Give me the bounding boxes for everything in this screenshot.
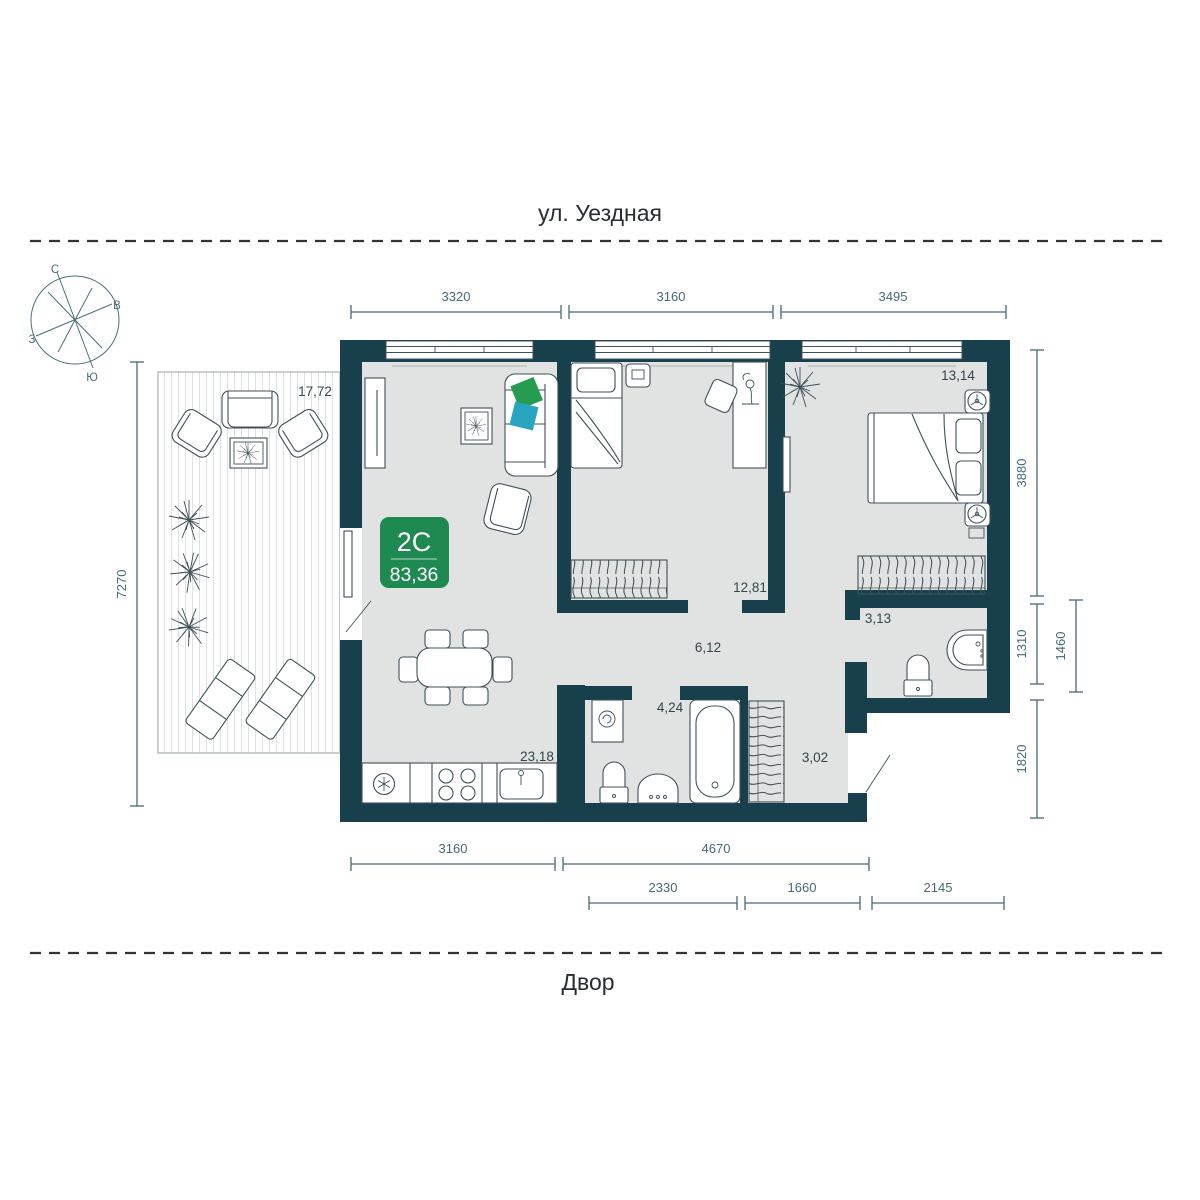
dim-label: 3495: [879, 289, 908, 304]
wall-segment: [845, 698, 1010, 713]
wall-segment: [740, 700, 748, 803]
dim-label: 3160: [439, 841, 468, 856]
floor-plan-canvas: ул. Уездная Двор С В З Ю: [0, 0, 1200, 1200]
dim-segment: 3880: [1014, 350, 1044, 596]
dim-segment: 3160: [351, 841, 555, 871]
compass-west-label: З: [29, 334, 36, 346]
dim-label: 4670: [702, 841, 731, 856]
wall-segment: [845, 608, 860, 620]
dim-label: 1660: [788, 880, 817, 895]
wall-segment: [680, 686, 748, 700]
dim-label: 2145: [924, 880, 953, 895]
terrace-sofa: [222, 391, 278, 428]
terrace-coffee-table: [230, 438, 267, 468]
nightstand: [626, 364, 650, 387]
room-area-label-bedroom-2: 13,14: [941, 368, 975, 383]
tv-stand: [365, 378, 385, 468]
bed-pillow: [956, 461, 981, 495]
entrance-door: [848, 733, 890, 793]
dimensions-top: 3320 3160 3495: [351, 289, 1006, 319]
dim-segment: 1310: [1014, 604, 1044, 684]
street-bottom-label: Двор: [561, 969, 614, 995]
wall-segment: [742, 600, 768, 613]
dining-chair: [463, 687, 488, 705]
street-bottom: Двор: [30, 953, 1170, 995]
bathroom-sink-icon: [638, 774, 678, 803]
wall-segment: [340, 803, 867, 822]
dim-label: 1460: [1053, 632, 1068, 661]
washing-machine-icon: [592, 700, 623, 742]
kitchen-sink-icon: [500, 769, 543, 799]
dim-segment: 2145: [872, 880, 1004, 910]
street-top: ул. Уездная: [30, 200, 1170, 241]
dimensions-right: 3880 1310 1460 1820: [1014, 350, 1083, 818]
unit-badge: 2С 83,36: [380, 517, 449, 588]
dim-label: 1820: [1014, 745, 1029, 774]
floor-plan-page: ул. Уездная Двор С В З Ю: [0, 0, 1200, 1200]
wall-segment: [340, 340, 362, 528]
sofa: [505, 374, 558, 476]
dim-label: 3320: [442, 289, 471, 304]
room-area-label-bathroom: 4,24: [657, 700, 684, 715]
single-bed: [571, 363, 622, 468]
mirror: [783, 437, 790, 492]
street-top-label: ул. Уездная: [538, 200, 662, 226]
picture-frame: [461, 408, 492, 444]
dim-label: 3880: [1014, 459, 1029, 488]
bed-pillow: [956, 419, 981, 453]
dim-label: 7270: [114, 570, 129, 599]
dim-segment: 1660: [745, 880, 860, 910]
toilet-icon: [600, 762, 628, 803]
room-area-label-hall: 6,12: [695, 640, 721, 655]
dining-chair: [425, 630, 450, 648]
room-area-label-wc: 3,13: [865, 611, 891, 626]
nightstand-lamp: [965, 390, 990, 413]
unit-area-label: 83,36: [390, 564, 439, 586]
bathtub: [690, 700, 740, 803]
unit-type-label: 2С: [397, 527, 432, 557]
wall-segment: [557, 362, 571, 613]
dim-segment: 3495: [781, 289, 1006, 319]
dim-segment: 4670: [563, 841, 869, 871]
double-bed: [868, 413, 983, 503]
dining-chair: [493, 657, 512, 682]
dim-segment: 7270: [114, 362, 144, 806]
dim-label: 1310: [1014, 630, 1029, 659]
kitchen-counter: [362, 763, 557, 803]
room-area-label-entry-hall: 3,02: [802, 750, 828, 765]
dim-label: 3160: [657, 289, 686, 304]
compass-south-label: Ю: [86, 372, 98, 384]
wall-segment: [557, 685, 585, 803]
closet-hangers: [749, 701, 784, 802]
dim-segment: 3160: [569, 289, 773, 319]
wall-segment: [585, 686, 632, 700]
dim-segment: 3320: [351, 289, 561, 319]
dining-chair: [399, 657, 418, 682]
wardrobe-hangers: [571, 560, 667, 598]
wall-segment: [557, 600, 688, 613]
dim-label: 2330: [649, 880, 678, 895]
dimensions-bottom-inner: 2330 1660 2145: [589, 880, 1004, 910]
wall-segment: [340, 640, 362, 822]
compass-north-label: С: [51, 264, 59, 276]
wc-sink-icon: [947, 630, 987, 670]
wall-segment: [848, 793, 867, 822]
dim-segment: 2330: [589, 880, 737, 910]
room-area-label-terrace: 17,72: [298, 384, 332, 399]
dimensions-bottom-outer: 3160 4670: [351, 841, 869, 871]
dim-segment: 1820: [1014, 700, 1044, 818]
wall-segment: [845, 662, 867, 733]
dining-chair: [463, 630, 488, 648]
toilet-icon: [904, 655, 932, 696]
room-area-label-living-kitchen: 23,18: [520, 749, 554, 764]
terrace: 17,72: [158, 372, 340, 753]
wardrobe-hangers: [858, 556, 985, 594]
dining-chair: [425, 687, 450, 705]
compass-rose: С В З Ю: [29, 264, 122, 384]
room-area-label-bedroom-1: 12,81: [733, 580, 767, 595]
dimensions-left: 7270: [114, 362, 144, 806]
dim-segment: 1460: [1053, 600, 1083, 692]
compass-east-label: В: [113, 300, 121, 312]
